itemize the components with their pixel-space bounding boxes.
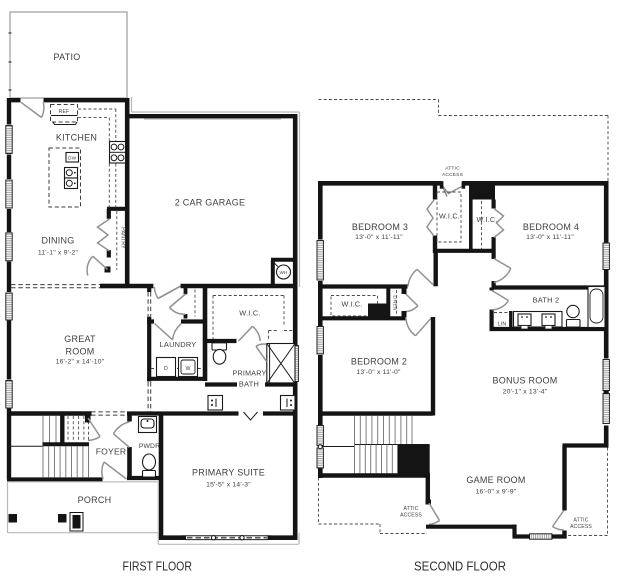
svg-text:REF: REF xyxy=(59,109,69,115)
svg-text:ACCESS: ACCESS xyxy=(400,513,422,519)
svg-text:13'-0" x 11'-0": 13'-0" x 11'-0" xyxy=(356,369,401,376)
svg-text:D: D xyxy=(164,366,168,372)
svg-text:BEDROOM 2: BEDROOM 2 xyxy=(351,357,407,367)
svg-text:FIRST FLOOR: FIRST FLOOR xyxy=(123,559,193,574)
svg-text:W.I.C.: W.I.C. xyxy=(341,300,362,309)
svg-text:W: W xyxy=(185,366,190,372)
svg-text:BEDROOM 3: BEDROOM 3 xyxy=(352,222,408,232)
svg-text:11'-1" x 9'-2": 11'-1" x 9'-2" xyxy=(38,249,79,256)
svg-text:PORCH: PORCH xyxy=(78,495,112,505)
svg-text:ATTIC: ATTIC xyxy=(445,166,460,172)
svg-text:WH: WH xyxy=(280,270,288,275)
svg-text:GAME ROOM: GAME ROOM xyxy=(466,475,525,485)
svg-text:LIN: LIN xyxy=(498,322,507,328)
svg-text:BATH 2: BATH 2 xyxy=(533,295,560,304)
svg-text:ACCESS: ACCESS xyxy=(442,172,464,178)
svg-text:ACCESS: ACCESS xyxy=(570,524,592,530)
svg-text:DINING: DINING xyxy=(42,236,75,246)
svg-text:15'-5" x 14'-3": 15'-5" x 14'-3" xyxy=(206,481,251,488)
svg-text:W.I.C.: W.I.C. xyxy=(439,212,460,221)
svg-text:W.I.C.: W.I.C. xyxy=(239,309,261,318)
svg-text:13'-0" x 11'-11": 13'-0" x 11'-11" xyxy=(355,234,403,241)
svg-text:13'-0" x 11'-11": 13'-0" x 11'-11" xyxy=(526,234,574,241)
svg-text:BONUS ROOM: BONUS ROOM xyxy=(492,376,557,386)
svg-text:PRIMARY SUITE: PRIMARY SUITE xyxy=(192,468,265,478)
svg-text:BEDROOM 4: BEDROOM 4 xyxy=(523,222,579,232)
svg-text:GREAT: GREAT xyxy=(64,334,96,344)
svg-text:ATTIC: ATTIC xyxy=(573,518,588,524)
svg-text:LAUNDRY: LAUNDRY xyxy=(160,340,197,349)
svg-text:DW: DW xyxy=(68,156,77,162)
svg-text:PWDR: PWDR xyxy=(139,443,160,450)
svg-text:16'-0" x 9'-9": 16'-0" x 9'-9" xyxy=(476,488,517,495)
svg-text:2 CAR GARAGE: 2 CAR GARAGE xyxy=(175,198,246,208)
svg-text:BATH: BATH xyxy=(239,380,259,389)
svg-text:PATIO: PATIO xyxy=(54,52,81,62)
svg-text:20'-1" x 13'-4": 20'-1" x 13'-4" xyxy=(503,389,548,396)
svg-text:ROOM: ROOM xyxy=(66,347,95,357)
svg-text:FOYER: FOYER xyxy=(96,447,127,457)
svg-text:W.I.C.: W.I.C. xyxy=(476,215,497,224)
svg-text:KITCHEN: KITCHEN xyxy=(56,133,97,143)
svg-text:PRIMARY: PRIMARY xyxy=(233,370,267,378)
svg-text:ATTIC: ATTIC xyxy=(403,506,418,512)
svg-text:LINEN: LINEN xyxy=(392,295,398,310)
svg-text:16'-2" x 14'-10": 16'-2" x 14'-10" xyxy=(56,359,105,366)
svg-text:SECOND FLOOR: SECOND FLOOR xyxy=(414,559,506,574)
svg-text:PANTRY: PANTRY xyxy=(120,227,126,249)
